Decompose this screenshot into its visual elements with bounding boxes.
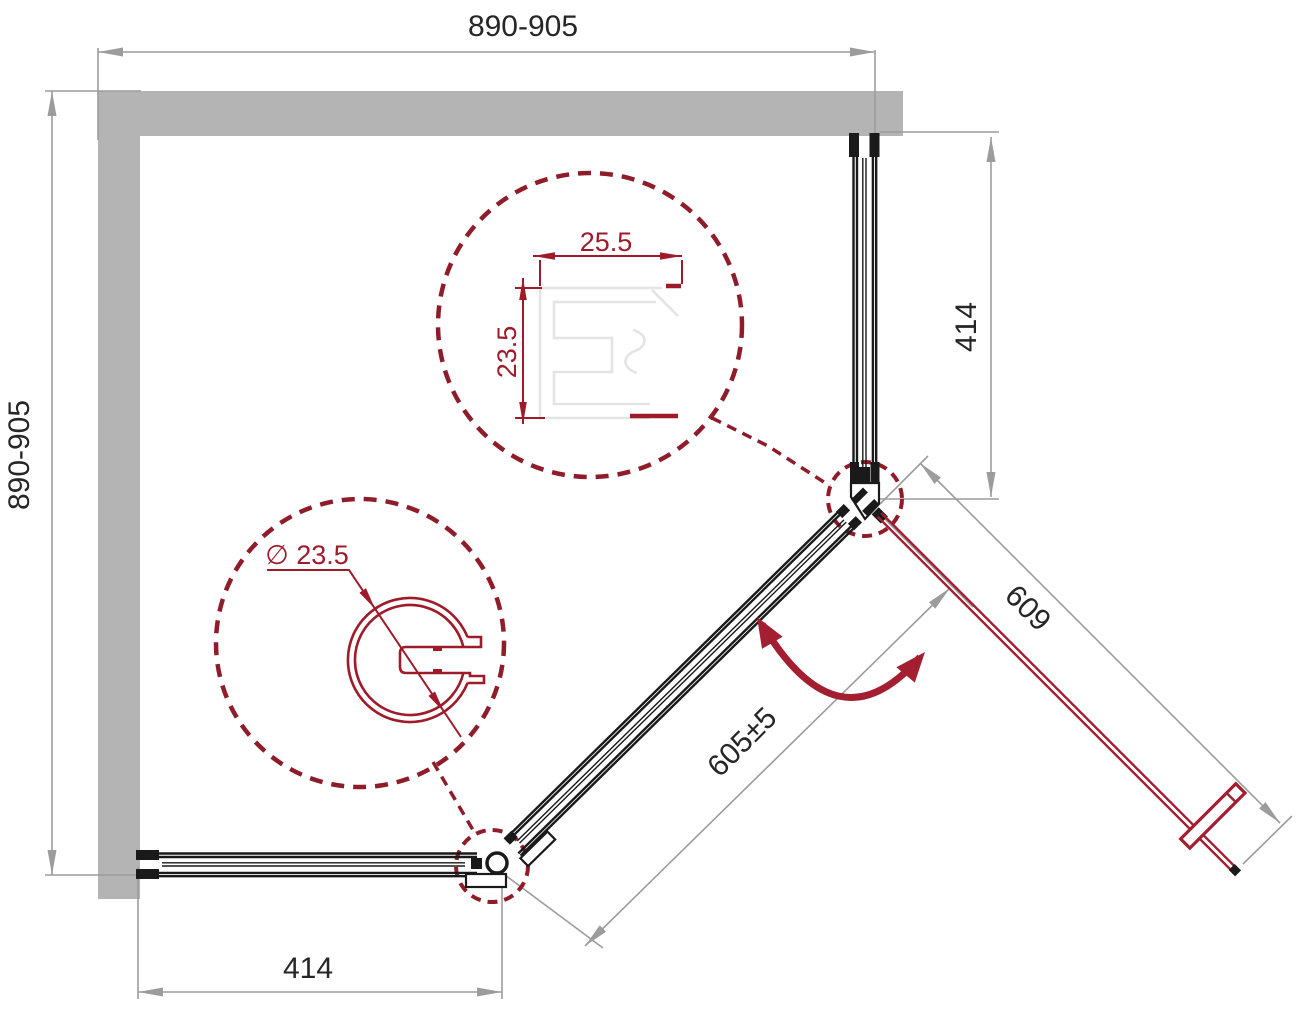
wall-profile-cap (136, 850, 159, 860)
arrowhead (477, 988, 502, 997)
arrowhead (359, 588, 375, 609)
label-top-width: 890-905 (468, 10, 578, 43)
floor-bracket (466, 874, 506, 887)
slot-notch (433, 647, 442, 651)
open-door-end-tip (1229, 864, 1241, 876)
arrowhead (48, 91, 57, 116)
door-frame-line (507, 508, 847, 842)
profile-outer-arc (348, 598, 468, 722)
door-handle-bar (1181, 784, 1245, 848)
door-glass-line (517, 520, 844, 841)
label-profile-height: 23.5 (492, 326, 522, 379)
arrowhead (533, 252, 555, 260)
fixed-panel-right (849, 133, 880, 486)
label-bottom-panel: 414 (283, 952, 333, 985)
profile-outline (540, 288, 662, 418)
round-profile-detail (267, 570, 484, 737)
label-profile-diameter: ∅ 23.5 (265, 540, 349, 570)
wall-profile-detail (515, 252, 682, 424)
pivot-door-open (864, 467, 1282, 885)
glass-clamp (859, 467, 870, 482)
dimension-line (920, 463, 1280, 823)
wall-profile-cap (870, 133, 880, 157)
arrowhead (987, 472, 996, 497)
extension-line (880, 514, 973, 607)
extension-line (1243, 816, 1292, 864)
shower-enclosure-plan: 890-905 890-905 414 414 605±5 609 25.5 2… (0, 0, 1300, 1009)
label-open-door: 609 (998, 579, 1057, 638)
slot-notch (433, 669, 442, 673)
technical-drawing-page: 890-905 890-905 414 414 605±5 609 25.5 2… (0, 0, 1300, 1009)
fixed-panel-bottom (136, 850, 482, 879)
door-frame-line (505, 506, 845, 840)
door-glass-line (520, 522, 847, 843)
detail-circle-round-profile (216, 499, 504, 787)
wall-l-shape (98, 91, 903, 899)
open-door-glass-line (878, 517, 1235, 874)
swing-arrow (757, 617, 925, 697)
label-right-panel: 414 (950, 302, 983, 352)
door-frame-line (518, 520, 858, 854)
pivot-hinge (487, 853, 507, 873)
arrowhead (48, 850, 57, 875)
arrowhead (138, 988, 163, 997)
profile-clip-squiggle (625, 330, 644, 373)
arrowhead (987, 137, 996, 162)
arrowhead (98, 48, 123, 57)
label-profile-width: 25.5 (580, 227, 633, 257)
wall-profile-cap (849, 133, 859, 157)
label-door-width: 605±5 (701, 701, 783, 783)
wall-profile-cap (136, 869, 159, 879)
door-frame-line (521, 522, 861, 856)
profile-width-dim (533, 252, 682, 286)
profile-slot (400, 637, 484, 683)
label-left-height: 890-905 (3, 400, 36, 510)
swing-arc (762, 624, 920, 697)
arrowhead (850, 48, 875, 57)
detail-leader-bottom (433, 762, 473, 830)
panel-end-cap (850, 462, 859, 484)
open-door-glass-line (881, 513, 1238, 870)
panel-end-cap (871, 462, 880, 484)
glass-clamp (471, 858, 482, 869)
detail-leader-top (712, 418, 830, 486)
arrowhead (519, 402, 527, 424)
arrowhead (660, 252, 682, 260)
detail-circle-wall-profile (438, 173, 742, 477)
